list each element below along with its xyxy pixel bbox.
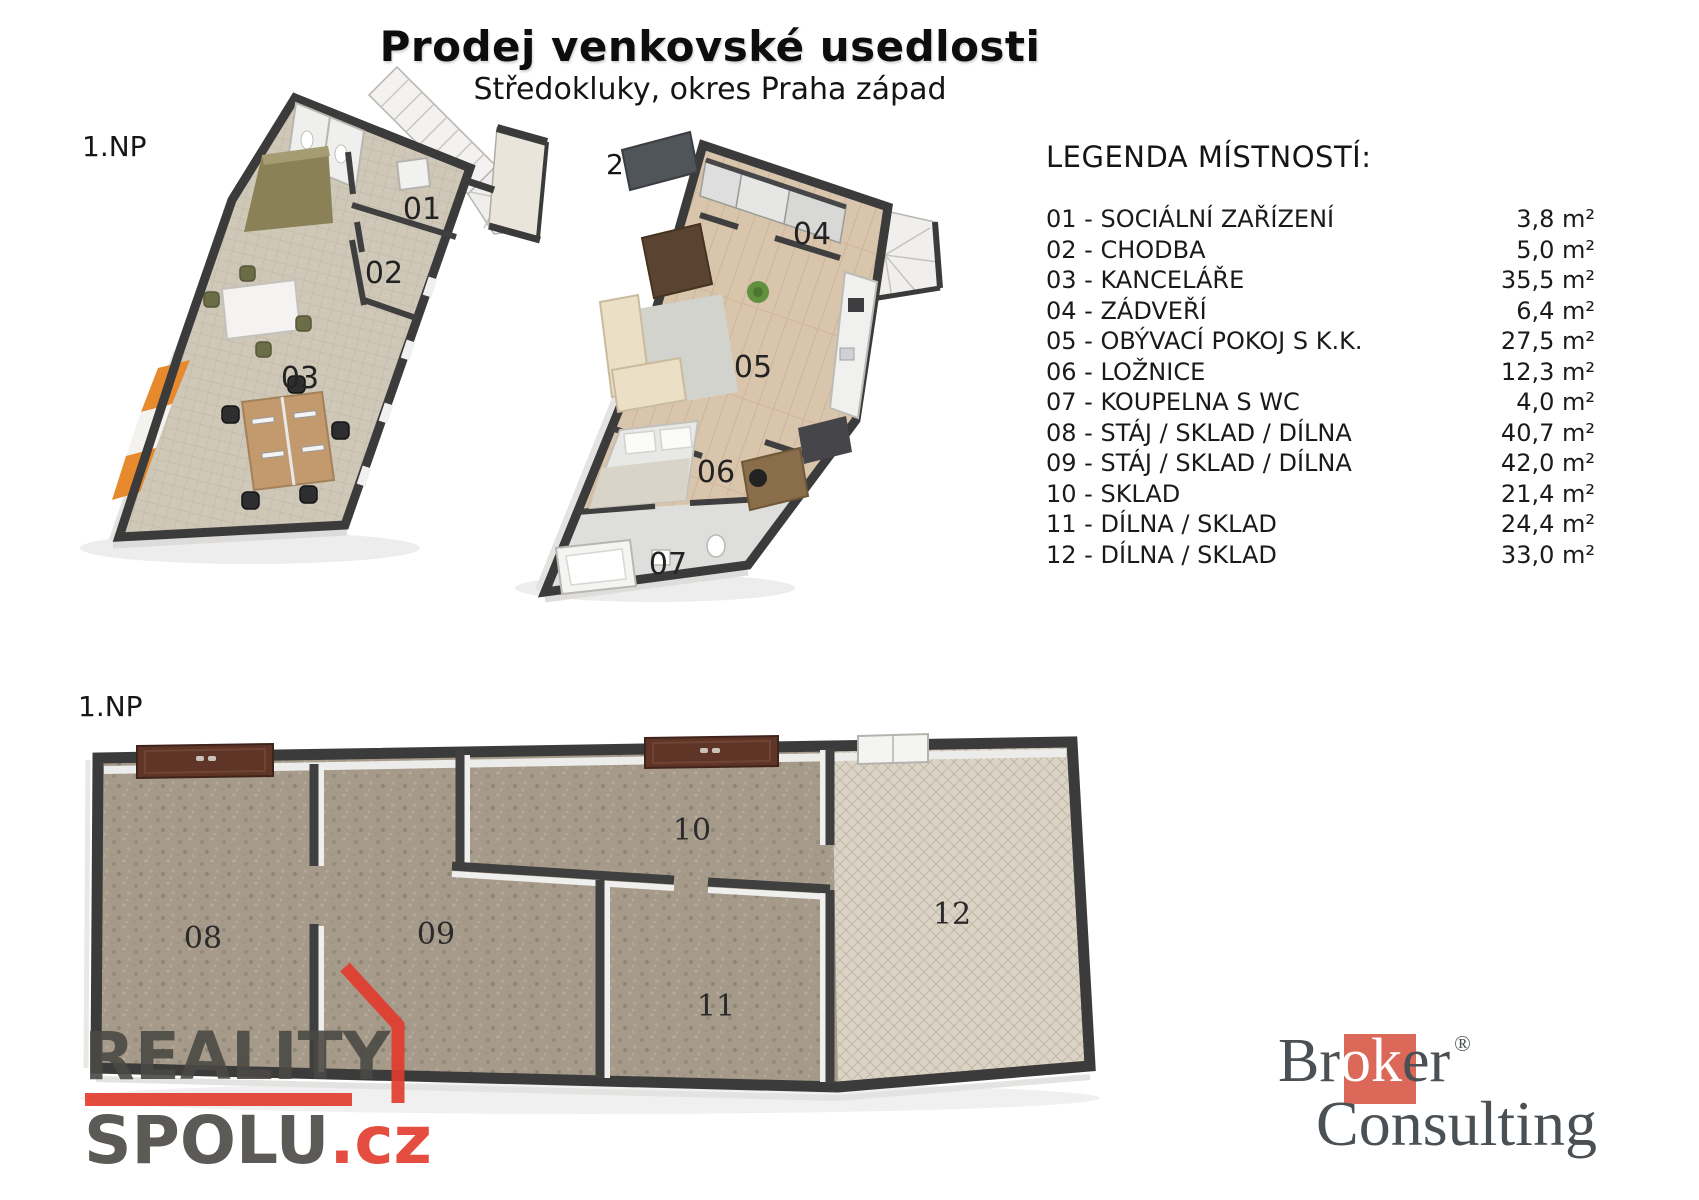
legend-row: 01 - SOCIÁLNÍ ZAŘÍZENÍ3,8 m² — [1046, 204, 1595, 235]
legend: LEGENDA MÍSTNOSTÍ: 01 - SOCIÁLNÍ ZAŘÍZEN… — [1046, 140, 1595, 570]
legend-row: 09 - STÁJ / SKLAD / DÍLNA42,0 m² — [1046, 448, 1595, 479]
legend-row: 12 - DÍLNA / SKLAD33,0 m² — [1046, 540, 1595, 571]
plant-center — [753, 287, 763, 297]
fixture-01 — [397, 158, 430, 190]
floorplan-poster: Prodej venkovské usedlosti Středokluky, … — [0, 0, 1699, 1200]
floorplan-2np-flat: 04 05 06 07 — [500, 105, 960, 605]
registered-mark: ® — [1454, 1031, 1471, 1056]
legend-rows: 01 - SOCIÁLNÍ ZAŘÍZENÍ3,8 m² 02 - CHODBA… — [1046, 204, 1595, 570]
room-number: 01 — [403, 192, 441, 227]
room-number: 07 — [649, 547, 687, 582]
door-opening-right — [858, 734, 928, 764]
floorplan-1np-offices: 01 02 03 — [70, 55, 560, 575]
room-number: 06 — [697, 455, 735, 490]
room-number: 10 — [673, 813, 711, 848]
barn-door-middle — [645, 736, 778, 768]
room-number: 02 — [365, 256, 403, 291]
legend-row: 05 - OBÝVACÍ POKOJ S K.K.27,5 m² — [1046, 326, 1595, 357]
dining-table — [642, 224, 712, 298]
plan2-building: 04 05 06 07 — [538, 132, 888, 599]
legend-row: 08 - STÁJ / SKLAD / DÍLNA40,7 m² — [1046, 418, 1595, 449]
legend-row: 07 - KOUPELNA S WC4,0 m² — [1046, 387, 1595, 418]
barn-door-left — [137, 744, 273, 778]
plan1-building: 01 02 03 — [112, 98, 470, 545]
room-number: 03 — [281, 361, 319, 396]
room-number: 09 — [417, 917, 455, 952]
room-number: 05 — [734, 350, 772, 385]
desk-chair — [749, 469, 767, 487]
cz-suffix: .cz — [329, 1102, 432, 1179]
broker-consulting-logo: Broker® Consulting — [1278, 1028, 1698, 1178]
legend-row: 03 - KANCELÁŘE35,5 m² — [1046, 265, 1595, 296]
legend-row: 11 - DÍLNA / SKLAD24,4 m² — [1046, 509, 1595, 540]
legend-row: 10 - SKLAD21,4 m² — [1046, 479, 1595, 510]
spolu-wordmark: SPOLU.cz — [84, 1108, 432, 1174]
logo-roof-icon — [338, 960, 418, 1110]
broker-wordmark: Broker® — [1278, 1030, 1471, 1092]
legend-row: 02 - CHODBA5,0 m² — [1046, 235, 1595, 266]
room-number: 08 — [184, 921, 222, 956]
room-number: 11 — [697, 989, 735, 1024]
consulting-wordmark: Consulting — [1316, 1092, 1597, 1156]
room-number: 12 — [933, 897, 971, 932]
room-number: 04 — [793, 217, 831, 252]
legend-row: 04 - ZÁDVEŘÍ6,4 m² — [1046, 296, 1595, 327]
legend-row: 06 - LOŽNICE12,3 m² — [1046, 357, 1595, 388]
toilet — [707, 535, 725, 557]
reality-spolu-logo: REALITY SPOLU.cz — [84, 1032, 504, 1192]
legend-heading: LEGENDA MÍSTNOSTÍ: — [1046, 140, 1595, 174]
